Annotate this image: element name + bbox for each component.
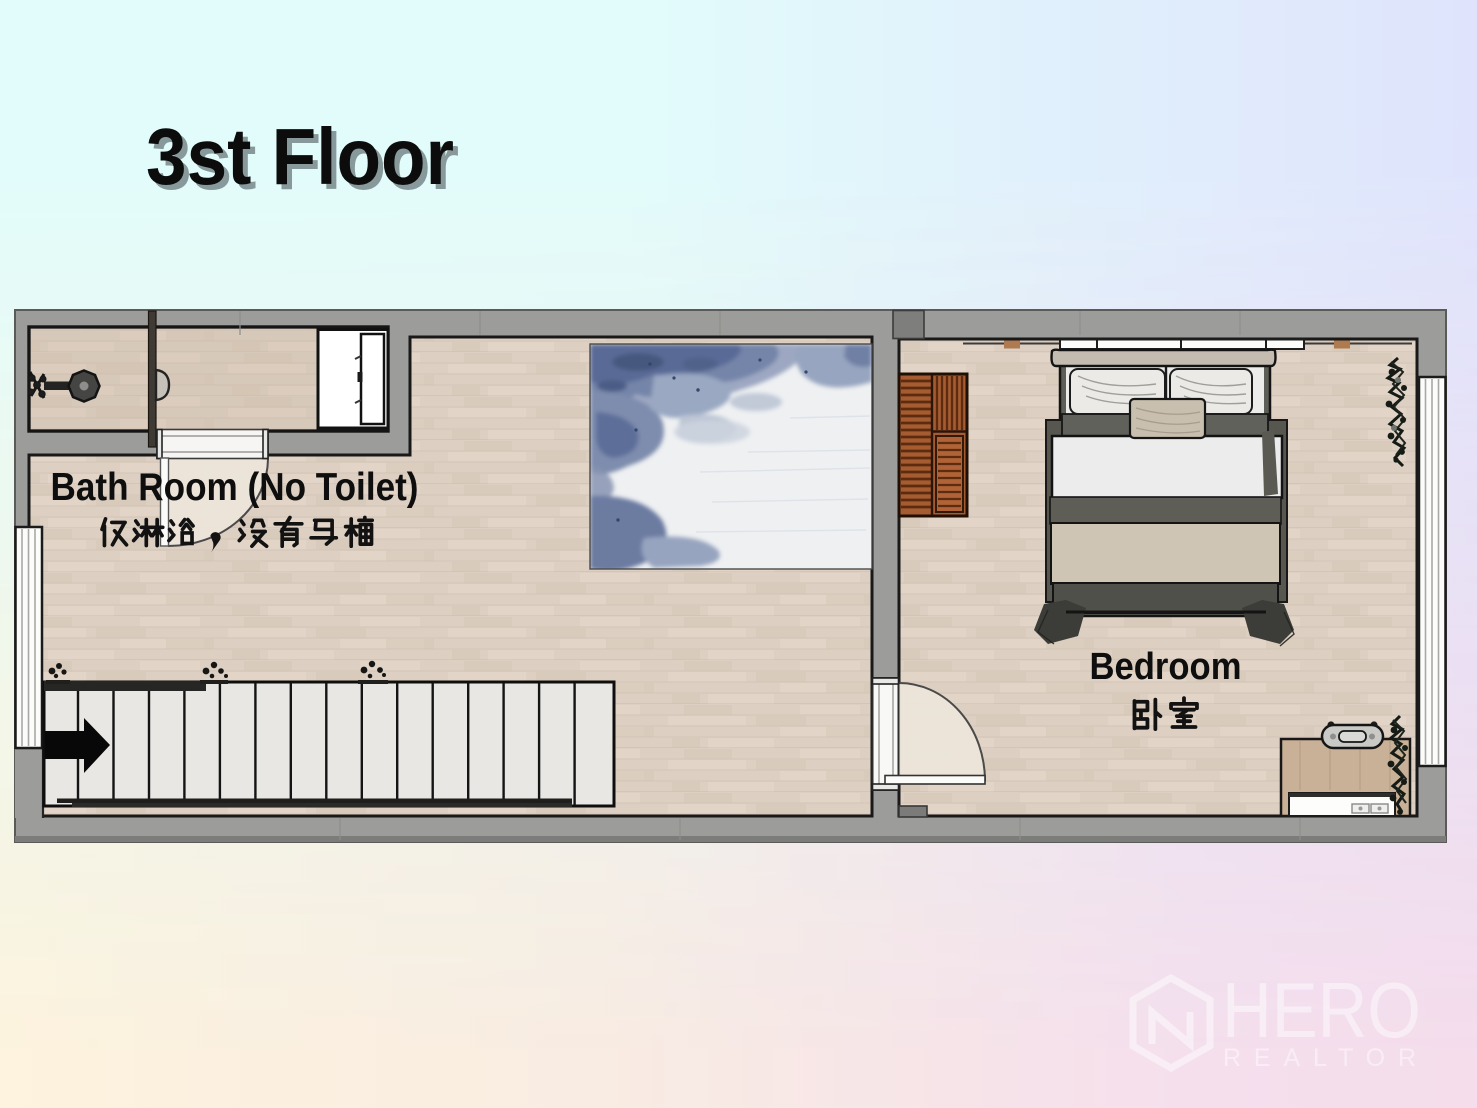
svg-text:Bedroom: Bedroom	[1090, 646, 1242, 688]
svg-text:3st Floor: 3st Floor	[146, 112, 454, 201]
svg-text:HERO: HERO	[1222, 966, 1421, 1054]
svg-text:Bath Room (No Toilet): Bath Room (No Toilet)	[51, 466, 419, 509]
